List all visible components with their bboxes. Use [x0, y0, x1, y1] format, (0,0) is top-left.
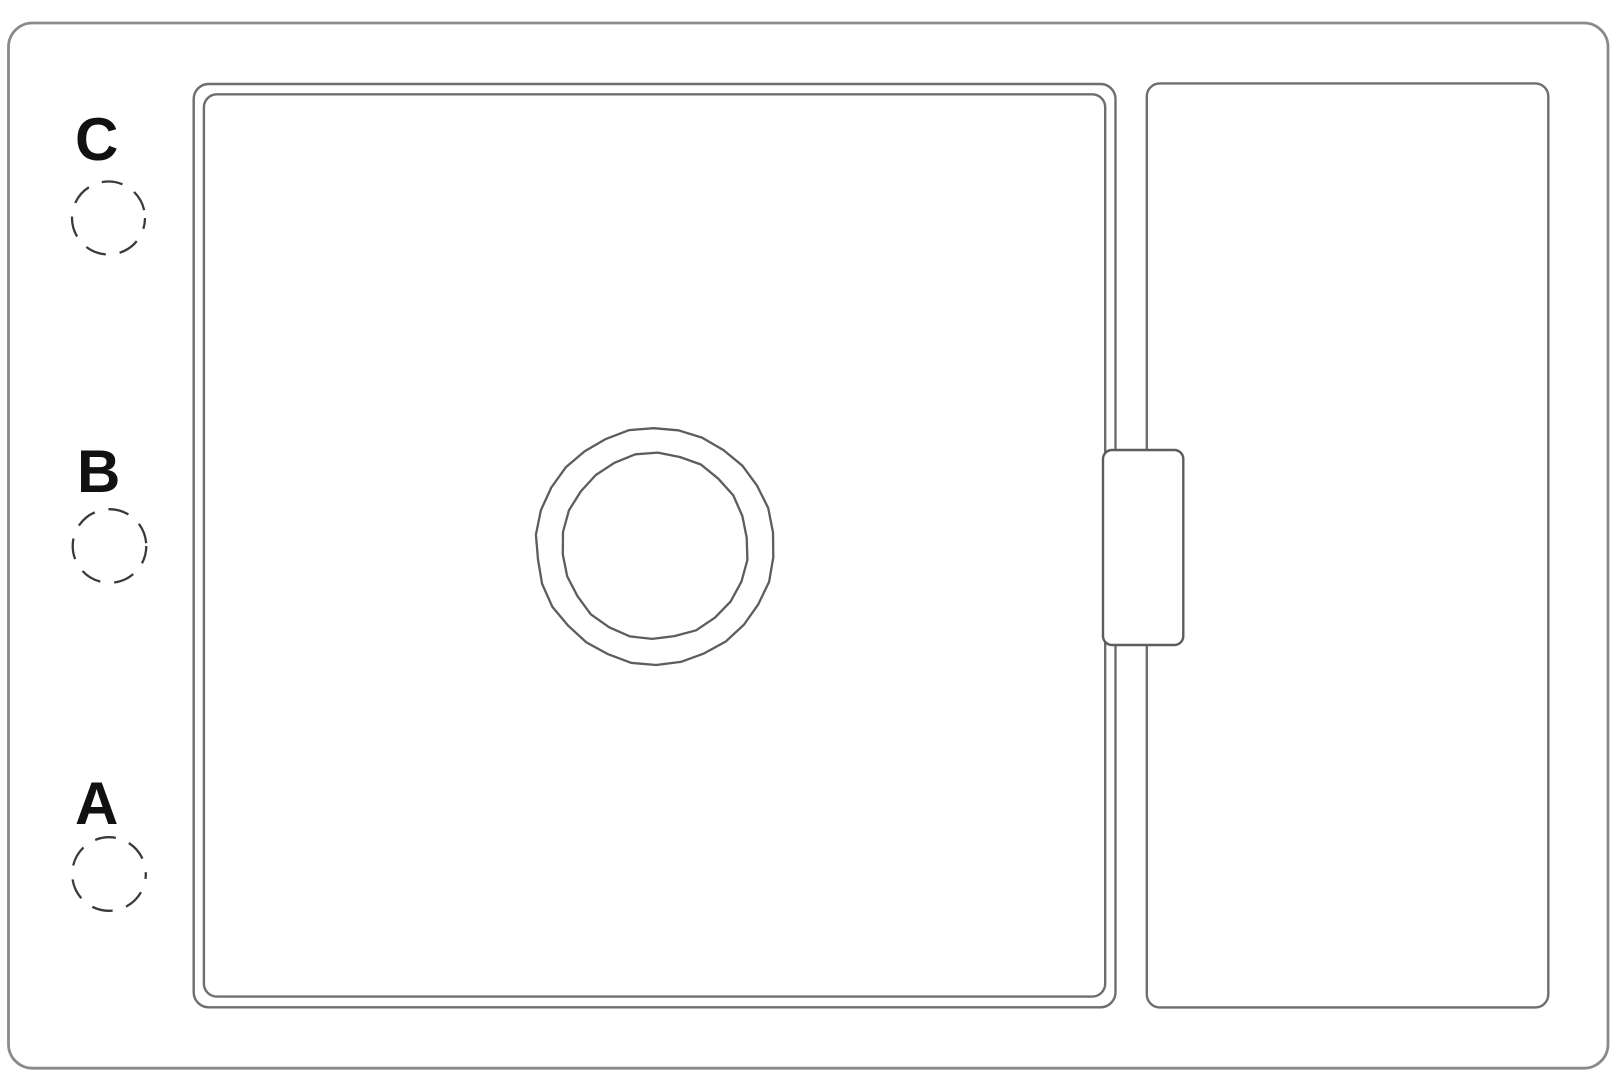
svg-text:B: B: [77, 438, 120, 505]
svg-text:C: C: [75, 106, 118, 173]
svg-text:A: A: [75, 770, 118, 837]
